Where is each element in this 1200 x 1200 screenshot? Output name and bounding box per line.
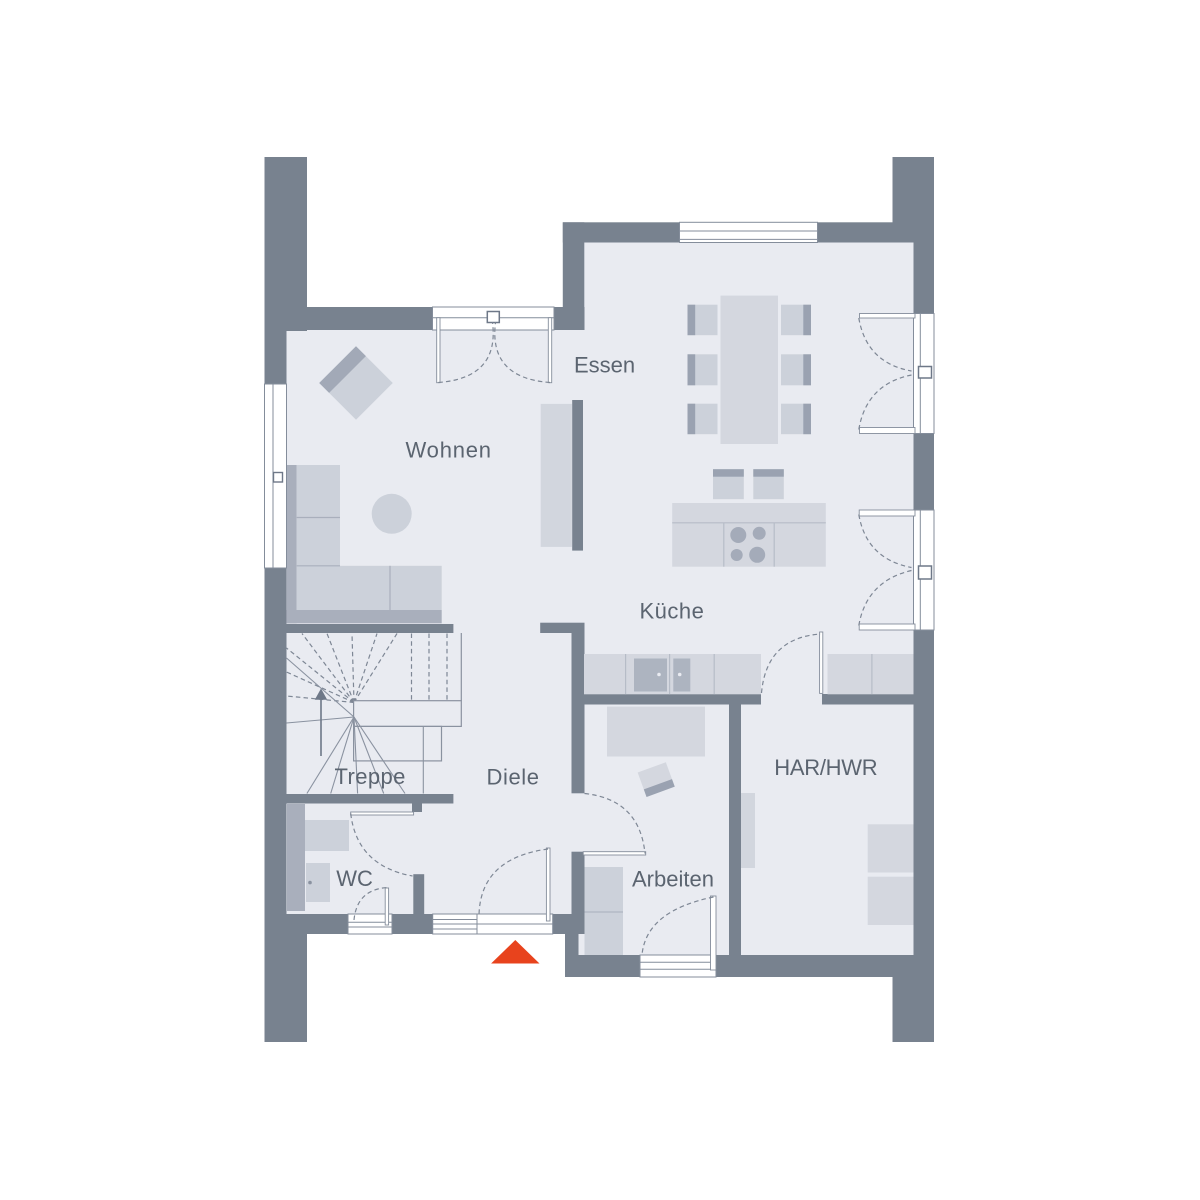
svg-text:Treppe: Treppe: [335, 764, 406, 789]
svg-text:Wohnen: Wohnen: [406, 438, 492, 463]
svg-text:HAR/HWR: HAR/HWR: [774, 755, 877, 780]
svg-text:Diele: Diele: [487, 765, 540, 790]
svg-text:Küche: Küche: [640, 598, 705, 623]
svg-text:Essen: Essen: [574, 353, 635, 378]
svg-text:WC: WC: [336, 866, 373, 891]
svg-text:Arbeiten: Arbeiten: [632, 867, 714, 892]
